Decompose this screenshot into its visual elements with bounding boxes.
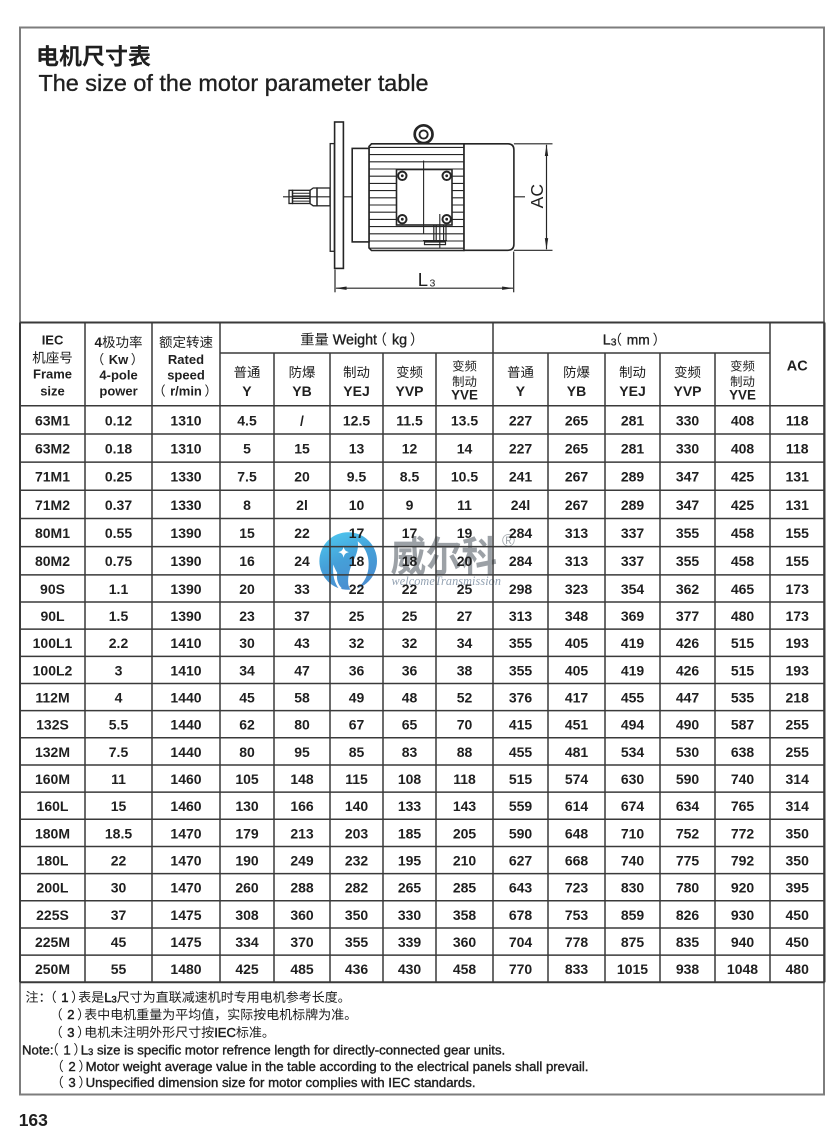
- svg-text:3: 3: [611, 337, 617, 348]
- svg-text:r/min: r/min: [170, 384, 202, 399]
- svg-text:Note:: Note:: [22, 1042, 54, 1057]
- svg-text:L: L: [603, 333, 611, 349]
- svg-text:YB: YB: [292, 383, 311, 399]
- svg-text:YVE: YVE: [451, 388, 478, 403]
- svg-text:YEJ: YEJ: [343, 383, 369, 399]
- svg-text:YEJ: YEJ: [619, 383, 645, 399]
- svg-text:3: 3: [430, 278, 436, 290]
- svg-text:L: L: [418, 269, 428, 290]
- svg-text:power: power: [99, 384, 137, 399]
- svg-text:2: 2: [68, 1059, 75, 1074]
- svg-text:The size of the motor paramete: The size of the motor parameter table: [39, 70, 429, 96]
- svg-text:kg: kg: [392, 333, 407, 349]
- svg-text:1: 1: [63, 1042, 70, 1057]
- svg-text:Weight: Weight: [329, 333, 381, 349]
- svg-text:Frame: Frame: [33, 367, 72, 382]
- svg-text:L: L: [81, 1042, 88, 1057]
- svg-text:YVE: YVE: [729, 388, 756, 403]
- svg-text:Unspecified dimension size for: Unspecified dimension size for motor com…: [86, 1075, 476, 1090]
- svg-text:IEC: IEC: [214, 1025, 236, 1040]
- svg-text:Rated: Rated: [168, 352, 204, 367]
- svg-text:YVP: YVP: [674, 383, 702, 399]
- svg-text:1: 1: [61, 990, 68, 1005]
- svg-text:2: 2: [67, 1007, 74, 1022]
- svg-text:L: L: [104, 990, 111, 1005]
- svg-text:3: 3: [67, 1025, 74, 1040]
- svg-text:YVP: YVP: [396, 383, 424, 399]
- svg-text:Kw: Kw: [109, 352, 129, 367]
- svg-text:Motor weight average value in: Motor weight average value in the table …: [86, 1059, 589, 1074]
- svg-text:speed: speed: [167, 368, 205, 383]
- svg-text:size: size: [40, 384, 65, 399]
- svg-text:Y: Y: [516, 383, 526, 399]
- svg-text:IEC: IEC: [42, 333, 64, 348]
- svg-text:YB: YB: [567, 383, 586, 399]
- svg-text:size is specific motor refrenc: size is specific motor refrence length f…: [93, 1042, 505, 1057]
- svg-text:163: 163: [19, 1110, 48, 1126]
- svg-text:4: 4: [95, 335, 103, 350]
- svg-text:Y: Y: [242, 383, 252, 399]
- svg-text:3: 3: [112, 994, 117, 1004]
- svg-text:3: 3: [68, 1075, 75, 1090]
- svg-text:AC: AC: [527, 184, 547, 208]
- svg-text:4-pole: 4-pole: [99, 368, 137, 383]
- svg-text:AC: AC: [787, 359, 808, 375]
- svg-text:mm: mm: [627, 333, 650, 348]
